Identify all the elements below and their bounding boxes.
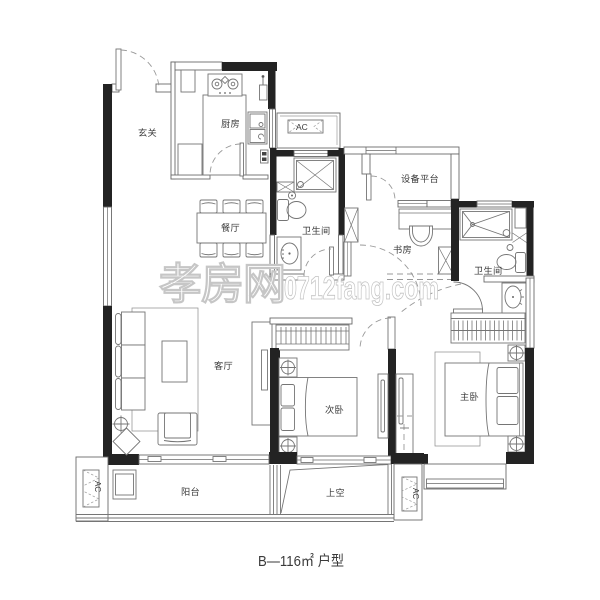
svg-text:卫生间: 卫生间 [474, 265, 502, 276]
svg-text:设备平台: 设备平台 [401, 173, 439, 184]
svg-text:0712fang.com: 0712fang.com [284, 270, 439, 306]
svg-text:阳台: 阳台 [181, 486, 200, 497]
svg-text:上空: 上空 [326, 487, 345, 498]
svg-text:餐厅: 餐厅 [221, 222, 240, 233]
svg-text:AC: AC [93, 481, 102, 492]
svg-text:玄关: 玄关 [138, 127, 157, 138]
svg-text:B—116㎡ 户型: B—116㎡ 户型 [258, 553, 344, 570]
svg-text:次卧: 次卧 [325, 404, 344, 415]
svg-text:书房: 书房 [393, 244, 412, 255]
svg-text:客厅: 客厅 [214, 360, 233, 371]
svg-text:孝房网: 孝房网 [159, 261, 285, 309]
svg-text:AC: AC [296, 122, 308, 132]
svg-text:卫生间: 卫生间 [302, 225, 330, 236]
svg-text:主卧: 主卧 [460, 391, 479, 402]
svg-text:AC: AC [411, 488, 420, 499]
svg-text:厨房: 厨房 [221, 118, 240, 129]
